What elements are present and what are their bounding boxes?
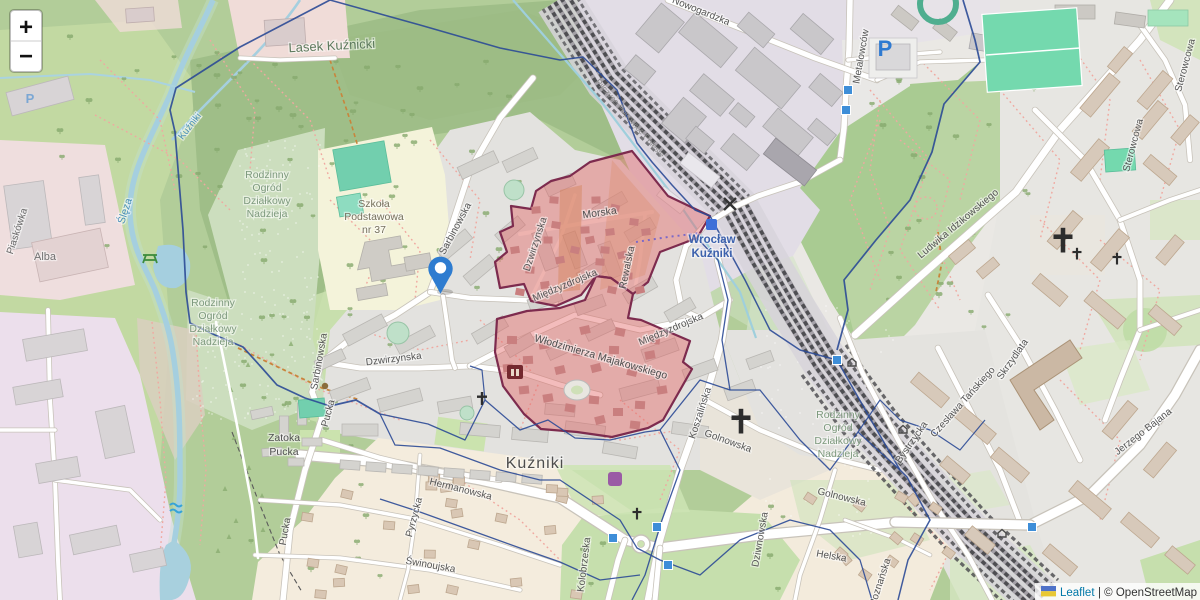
- svg-text:Szkoła: Szkoła: [358, 198, 390, 210]
- svg-text:P: P: [878, 36, 893, 61]
- svg-text:Działkowy: Działkowy: [243, 195, 291, 207]
- svg-text:Podstawowa: Podstawowa: [344, 211, 404, 223]
- svg-text:nr 37: nr 37: [362, 224, 386, 236]
- svg-text:Ogród: Ogród: [252, 182, 281, 194]
- svg-text:Pucka: Pucka: [269, 446, 298, 458]
- svg-text:| © OpenStreetMap: | © OpenStreetMap: [1098, 587, 1197, 599]
- svg-text:Alba: Alba: [34, 251, 57, 263]
- svg-text:+: +: [19, 14, 33, 41]
- svg-text:Leaflet: Leaflet: [1060, 587, 1095, 599]
- svg-text:Kuźniki: Kuźniki: [692, 248, 733, 260]
- svg-text:Zatoka: Zatoka: [268, 432, 300, 444]
- svg-text:Działkowy: Działkowy: [814, 435, 862, 447]
- svg-text:Kuźniki: Kuźniki: [506, 455, 565, 472]
- svg-text:Działkowy: Działkowy: [189, 323, 237, 335]
- svg-text:Nadzieja: Nadzieja: [818, 448, 859, 460]
- svg-text:Wrocław: Wrocław: [688, 234, 735, 246]
- svg-text:Nadzieja: Nadzieja: [247, 208, 288, 220]
- svg-text:Nadzieja: Nadzieja: [193, 336, 234, 348]
- svg-text:Rodzinny: Rodzinny: [245, 169, 290, 181]
- svg-text:Ogród: Ogród: [198, 310, 227, 322]
- svg-text:−: −: [19, 43, 33, 70]
- svg-text:Rodzinny: Rodzinny: [191, 297, 236, 309]
- svg-text:Rodzinny: Rodzinny: [816, 409, 861, 421]
- svg-text:Ogród: Ogród: [823, 422, 852, 434]
- svg-text:P: P: [26, 91, 35, 106]
